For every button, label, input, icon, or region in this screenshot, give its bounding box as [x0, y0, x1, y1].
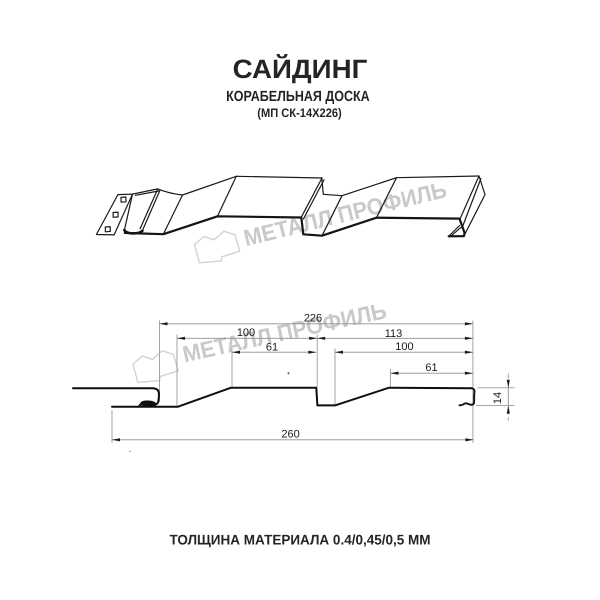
svg-text:МЕТАЛЛ ПРОФИЛЬ: МЕТАЛЛ ПРОФИЛЬ — [180, 297, 389, 367]
svg-text:14: 14 — [492, 392, 504, 404]
svg-text:ТОЛЩИНА МАТЕРИАЛА 0.4/0,45/0,5: ТОЛЩИНА МАТЕРИАЛА 0.4/0,45/0,5 ММ — [170, 531, 431, 547]
svg-text:61: 61 — [425, 362, 437, 374]
svg-text:100: 100 — [395, 341, 413, 353]
svg-text:226: 226 — [304, 312, 322, 324]
svg-text:61: 61 — [266, 341, 278, 353]
svg-text:100: 100 — [237, 327, 255, 339]
svg-text:САЙДИНГ: САЙДИНГ — [233, 54, 368, 84]
svg-text:(МП СК-14Х226): (МП СК-14Х226) — [257, 106, 342, 120]
svg-text:260: 260 — [281, 429, 299, 441]
svg-text:113: 113 — [385, 328, 403, 340]
svg-text:КОРАБЕЛЬНАЯ ДОСКА: КОРАБЕЛЬНАЯ ДОСКА — [226, 89, 370, 105]
svg-text:МЕТАЛЛ ПРОФИЛЬ: МЕТАЛЛ ПРОФИЛЬ — [241, 176, 449, 251]
